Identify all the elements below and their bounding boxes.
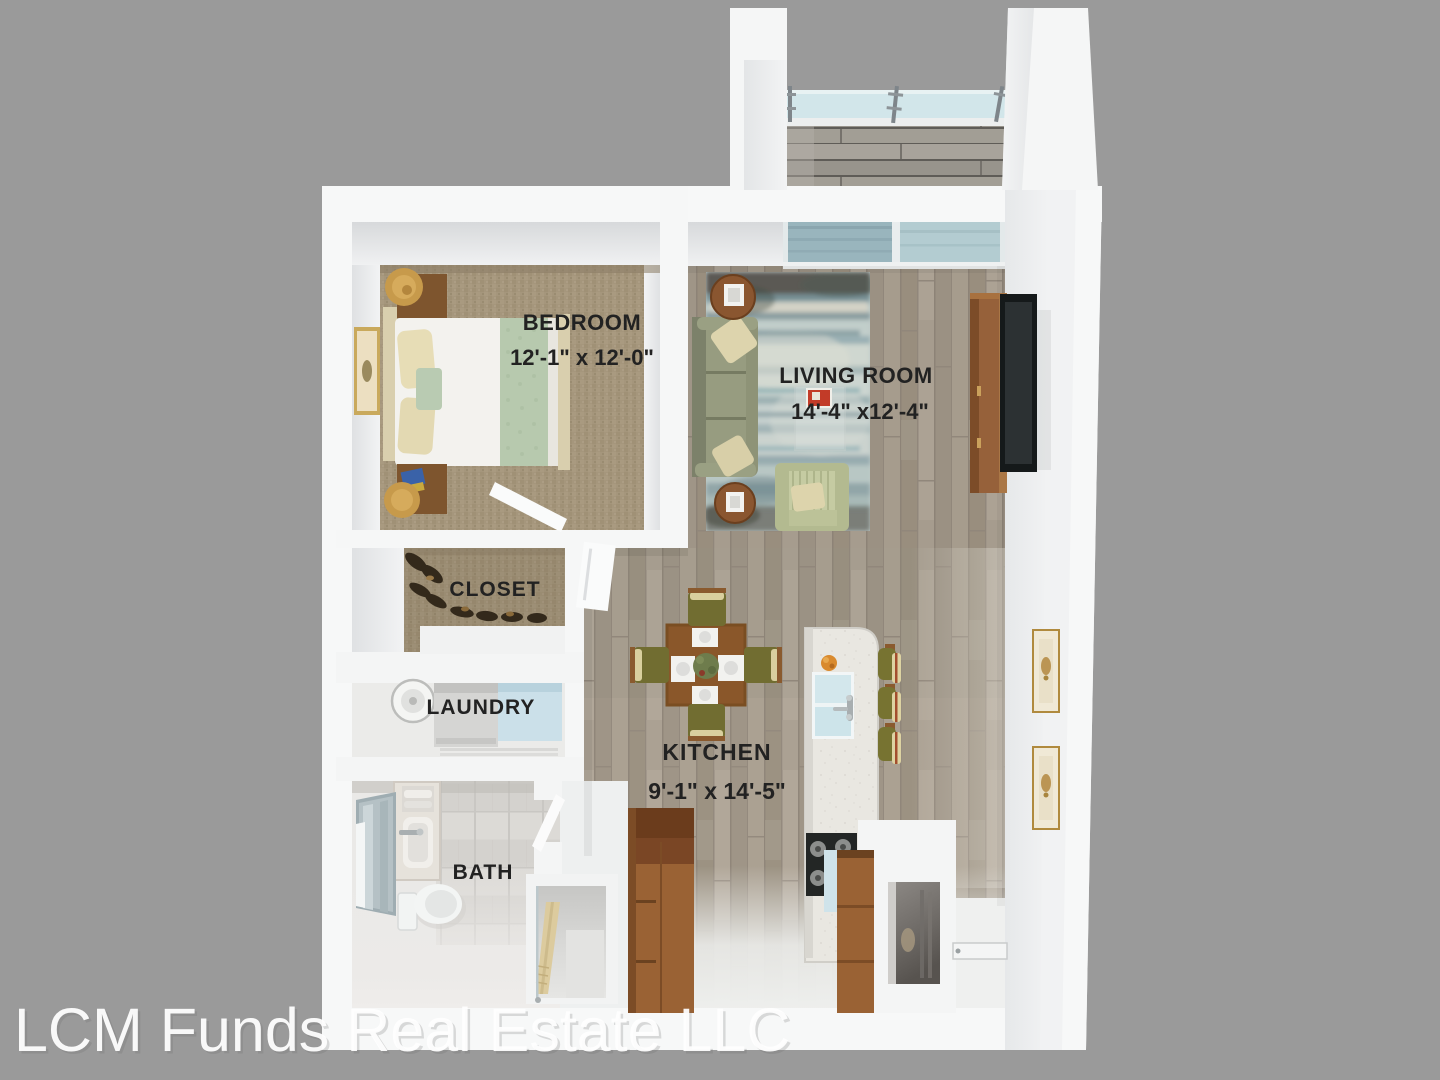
svg-text:9'-1" x 14'-5": 9'-1" x 14'-5" xyxy=(648,778,786,804)
svg-text:12'-1" x 12'-0": 12'-1" x 12'-0" xyxy=(510,345,654,370)
svg-text:CLOSET: CLOSET xyxy=(449,578,540,601)
svg-text:BATH: BATH xyxy=(453,861,514,884)
svg-text:LCM Funds Real Estate LLC: LCM Funds Real Estate LLC xyxy=(14,996,790,1064)
svg-text:KITCHEN: KITCHEN xyxy=(662,739,771,765)
svg-text:LIVING ROOM: LIVING ROOM xyxy=(779,363,932,388)
svg-text:BEDROOM: BEDROOM xyxy=(523,310,641,335)
svg-text:14'-4" x12'-4": 14'-4" x12'-4" xyxy=(791,399,929,424)
svg-text:LAUNDRY: LAUNDRY xyxy=(427,696,536,719)
